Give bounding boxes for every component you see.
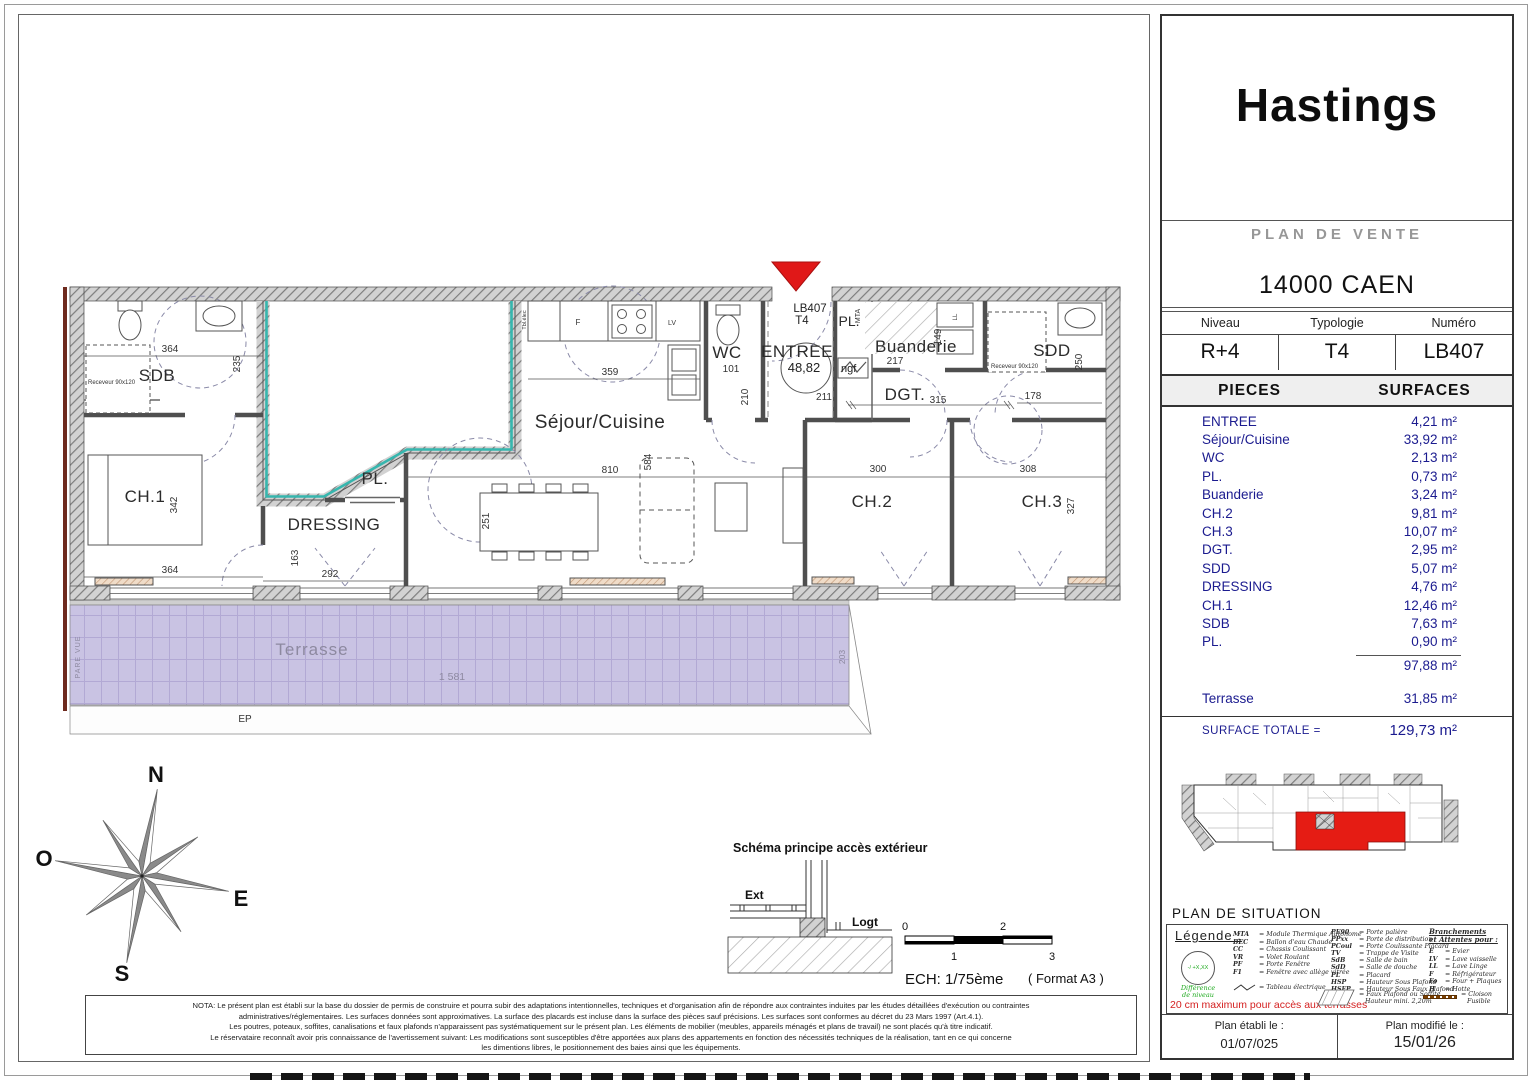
total-row: SURFACE TOTALE = 129,73 m² xyxy=(1162,722,1512,739)
windows xyxy=(110,588,1065,599)
svg-text:2: 2 xyxy=(1000,921,1006,933)
svg-text:342: 342 xyxy=(169,496,180,513)
project-title: Hastings xyxy=(1162,78,1512,132)
table-row: DRESSING4,76 m² xyxy=(1162,578,1512,596)
false-ceiling-icon xyxy=(1317,989,1355,1007)
numero-label: Numéro xyxy=(1395,316,1512,334)
divider xyxy=(1162,307,1512,308)
table-row: CH.310,07 m² xyxy=(1162,522,1512,540)
total-label: SURFACE TOTALE = xyxy=(1162,725,1352,737)
subtotal-row: 97,88 m² xyxy=(1162,658,1512,673)
room-entree: ENTREE xyxy=(761,342,833,361)
pare-vue-label: PARE VUE xyxy=(75,636,82,679)
level-difference-caption: Différence de niveau xyxy=(1169,985,1227,998)
scale-text: ECH: 1/75ème xyxy=(905,971,1003,988)
room-ch2: CH.2 xyxy=(852,492,893,511)
svg-text:359: 359 xyxy=(602,367,619,378)
fusible-partition-icon xyxy=(1423,995,1457,999)
svg-text:584: 584 xyxy=(643,453,654,470)
compass-o: O xyxy=(35,846,52,871)
compass-e: E xyxy=(234,886,249,911)
nota-line: les dimentions libres, le positionnement… xyxy=(86,1043,1136,1054)
nota-line: administratives/réglementaires. Les surf… xyxy=(86,1012,1136,1023)
svg-text:101: 101 xyxy=(723,364,740,375)
facade-notch xyxy=(263,301,515,500)
nota-line: Les poutres, poteaux, soffites, canalisa… xyxy=(86,1022,1136,1033)
subtotal-value: 97,88 m² xyxy=(1352,658,1457,673)
scale-bar: 0 2 1 3 ECH: 1/75ème ( Format A3 ) xyxy=(902,921,1104,988)
typologie-value: T4 xyxy=(1278,335,1395,370)
svg-text:Receveur 90x120: Receveur 90x120 xyxy=(991,364,1039,370)
room-wc: WC xyxy=(712,343,741,362)
plan-dates: Plan établi le : 01/07/025 Plan modifié … xyxy=(1162,1014,1512,1058)
svg-text:Tbl.élec: Tbl.élec xyxy=(522,310,528,330)
city-label: 14000 CAEN xyxy=(1162,271,1512,300)
table-row: SDB7,63 m² xyxy=(1162,614,1512,632)
niveau-label: Niveau xyxy=(1162,316,1279,334)
schema-title: Schéma principe accès extérieur xyxy=(733,841,928,855)
room-dressing: DRESSING xyxy=(288,515,381,534)
svg-text:300: 300 xyxy=(870,464,887,475)
legend-col3: Branchements et Attentes pour : E= Evier… xyxy=(1429,928,1502,994)
svg-text:LL: LL xyxy=(953,313,959,320)
fusible-partition-caption: = Cloison Fusible xyxy=(1461,991,1492,1005)
niveau-value: R+4 xyxy=(1162,335,1278,370)
compass-n: N xyxy=(148,762,164,787)
svg-text:308: 308 xyxy=(1020,464,1037,475)
table-row: CH.29,81 m² xyxy=(1162,504,1512,522)
table-row: PL.0,90 m² xyxy=(1162,633,1512,651)
table-row: SDD5,07 m² xyxy=(1162,559,1512,577)
svg-text:210: 210 xyxy=(740,388,751,405)
svg-text:178: 178 xyxy=(1025,391,1042,402)
plan-sheet: Terrasse 1 581 203 PARE VUE EP EP xyxy=(0,0,1532,1080)
svg-text:149: 149 xyxy=(933,328,944,345)
svg-text:251: 251 xyxy=(481,512,492,529)
access-schema: Schéma principe accès extérieur Ext Logt xyxy=(728,841,928,973)
svg-text:315: 315 xyxy=(930,395,947,406)
divider xyxy=(1162,311,1512,312)
plan-type-label: PLAN DE VENTE xyxy=(1162,226,1512,243)
svg-text:364: 364 xyxy=(162,565,179,576)
svg-text:F: F xyxy=(576,318,581,327)
svg-text:327: 327 xyxy=(1066,497,1077,514)
divider xyxy=(1162,220,1512,221)
schema-ext-label: Ext xyxy=(745,888,764,902)
surfaces-table: ENTREE4,21 m² Séjour/Cuisine33,92 m² WC2… xyxy=(1162,412,1512,651)
table-row: ENTREE4,21 m² xyxy=(1162,412,1512,430)
terrasse-row: Terrasse 31,85 m² xyxy=(1162,688,1512,708)
svg-text:3: 3 xyxy=(1049,951,1055,963)
unit-meta: Niveau Typologie Numéro R+4 T4 LB407 xyxy=(1162,316,1512,370)
room-dgt: DGT. xyxy=(885,385,926,404)
room-sdd: SDD xyxy=(1033,341,1070,360)
title-block-panel: Hastings PLAN DE VENTE 14000 CAEN Niveau… xyxy=(1160,14,1514,1060)
table-row: PL.0,73 m² xyxy=(1162,467,1512,485)
plan-modifie-cell: Plan modifié le : 15/01/26 xyxy=(1337,1015,1513,1058)
table-row: CH.112,46 m² xyxy=(1162,596,1512,614)
ngf-unit: ngf xyxy=(841,363,857,375)
svg-text:364: 364 xyxy=(162,344,179,355)
surfaces-header: SURFACES xyxy=(1337,382,1512,400)
typologie-label: Typologie xyxy=(1279,316,1396,334)
table-row: DGT.2,95 m² xyxy=(1162,541,1512,559)
ngf-value: 48,82 xyxy=(788,360,821,375)
svg-text:0: 0 xyxy=(902,921,908,933)
format-text: ( Format A3 ) xyxy=(1028,971,1104,986)
terrace-label: Terrasse xyxy=(275,640,348,659)
table-row: Séjour/Cuisine33,92 m² xyxy=(1162,430,1512,448)
situation-map-label: PLAN DE SITUATION xyxy=(1172,906,1322,921)
total-value: 129,73 m² xyxy=(1352,722,1457,739)
svg-text:163: 163 xyxy=(290,549,301,566)
total-rule xyxy=(1162,716,1512,717)
pieces-header: PIECES xyxy=(1162,382,1337,400)
ep-bottom-label: EP xyxy=(238,714,252,725)
svg-text:250: 250 xyxy=(1074,353,1085,370)
electric-panel-icon xyxy=(1233,984,1257,992)
svg-text:Receveur 90x120: Receveur 90x120 xyxy=(88,380,136,386)
terrace-depth-dim: 203 xyxy=(837,650,847,664)
compass-rose: N O E S xyxy=(35,762,248,986)
plan-etabli-cell: Plan établi le : 01/07/025 xyxy=(1162,1015,1337,1058)
svg-text:MTA: MTA xyxy=(855,309,862,324)
schema-logt-label: Logt xyxy=(852,915,878,929)
svg-text:292: 292 xyxy=(322,569,339,580)
terrace-width-dim: 1 581 xyxy=(439,671,465,683)
table-row: Buanderie3,24 m² xyxy=(1162,486,1512,504)
table-row: WC2,13 m² xyxy=(1162,449,1512,467)
svg-text:810: 810 xyxy=(602,465,619,476)
nota-line: NOTA: Le présent plan est établi sur la … xyxy=(86,1001,1136,1012)
room-pl-dressing: PL. xyxy=(361,469,388,488)
situation-map xyxy=(1178,758,1496,888)
legend-title: Légende : xyxy=(1175,928,1242,943)
compass-s: S xyxy=(115,961,130,986)
unit-type: T4 xyxy=(795,315,809,327)
entrance-marker-icon xyxy=(772,262,820,291)
subtotal-rule xyxy=(1356,655,1461,656)
room-sejour: Séjour/Cuisine xyxy=(535,412,666,433)
room-ch3: CH.3 xyxy=(1022,492,1063,511)
svg-text:LV: LV xyxy=(668,320,676,327)
unit-code: LB407 xyxy=(793,303,826,315)
room-ch1: CH.1 xyxy=(125,487,166,506)
svg-text:1: 1 xyxy=(951,951,957,963)
surfaces-table-header: PIECES SURFACES xyxy=(1162,374,1512,407)
room-buanderie: Buanderie xyxy=(875,337,957,356)
nota-block: NOTA: Le présent plan est établi sur la … xyxy=(85,995,1137,1055)
dimension-texts: 364 235 342 364 163 292 359 584 810 251 … xyxy=(162,328,1085,580)
level-difference-icon: -/ +X,XX xyxy=(1181,951,1215,985)
legend-box: Légende : -/ +X,XX Différence de niveau … xyxy=(1166,924,1508,1014)
floor-plan-drawing: Terrasse 1 581 203 PARE VUE EP EP xyxy=(0,0,1160,1000)
pare-vue-screen xyxy=(63,287,67,711)
svg-text:211: 211 xyxy=(816,392,832,403)
nota-line: Le réservataire reconnaît avoir pris con… xyxy=(86,1033,1136,1044)
svg-text:217: 217 xyxy=(887,356,904,367)
numero-value: LB407 xyxy=(1395,335,1512,370)
svg-text:235: 235 xyxy=(232,355,243,372)
room-sdb: SDB xyxy=(139,366,175,385)
sheet-cutline xyxy=(250,1073,1310,1080)
